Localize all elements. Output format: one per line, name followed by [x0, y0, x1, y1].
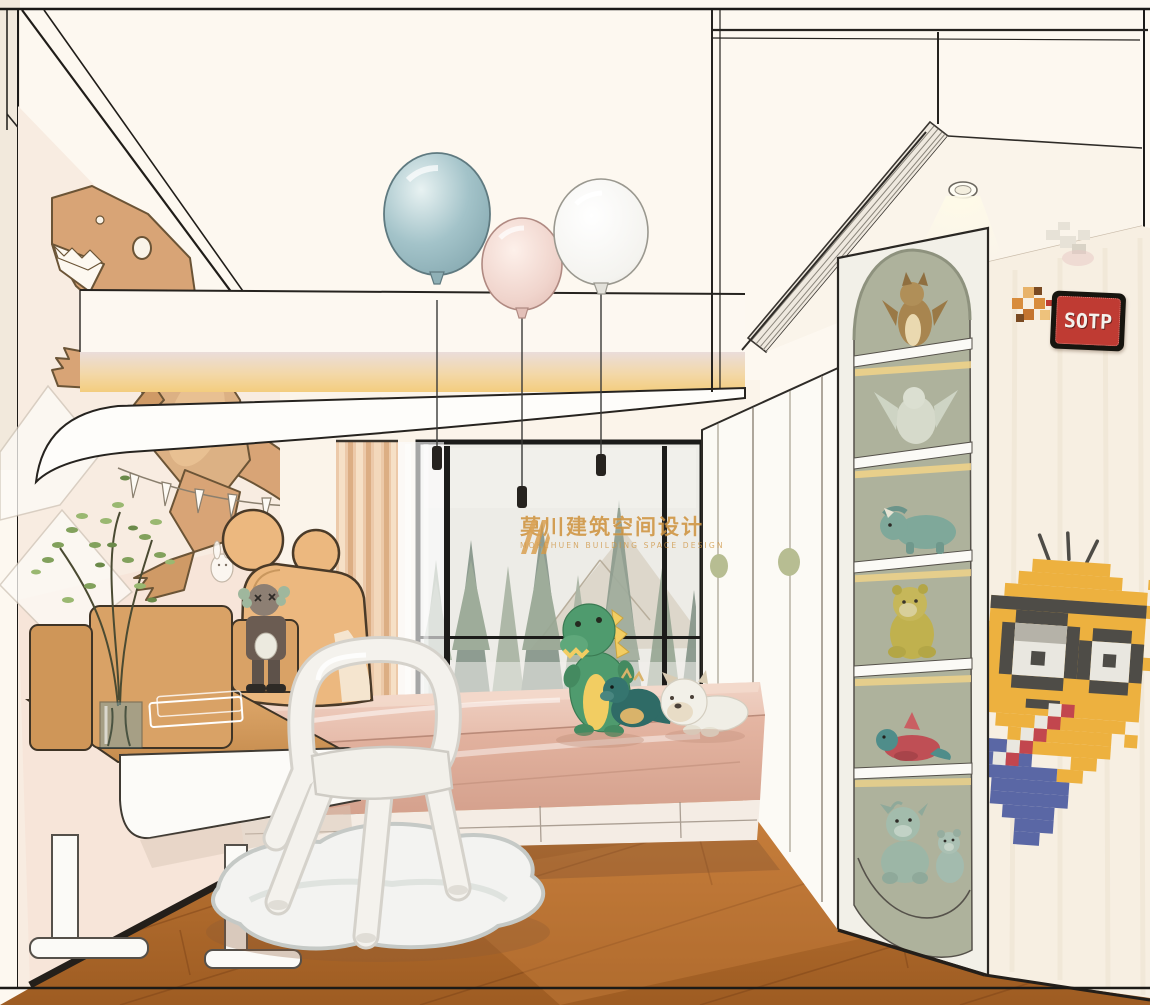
cove-light-glow — [80, 352, 745, 392]
sotp-wall-sign: SOTP — [1050, 290, 1126, 351]
sotp-sign-text: SOTP — [1063, 308, 1112, 334]
sotp-sign-red-panel: SOTP — [1055, 296, 1121, 347]
balloon-bulb — [517, 486, 527, 508]
ceiling-cove — [80, 290, 745, 392]
wardrobe-handle — [778, 548, 800, 576]
room-illustration — [0, 0, 1150, 1005]
balloon-bulb — [432, 446, 442, 470]
display-shelf — [838, 228, 988, 975]
balloon-bulb — [596, 454, 606, 476]
wardrobe-handle — [710, 554, 728, 578]
children-bedroom-rendering: 莫川建筑空间设计 MOKCHUEN BUILDING SPACE DESIGN … — [0, 0, 1150, 1005]
window-transom — [420, 636, 700, 639]
